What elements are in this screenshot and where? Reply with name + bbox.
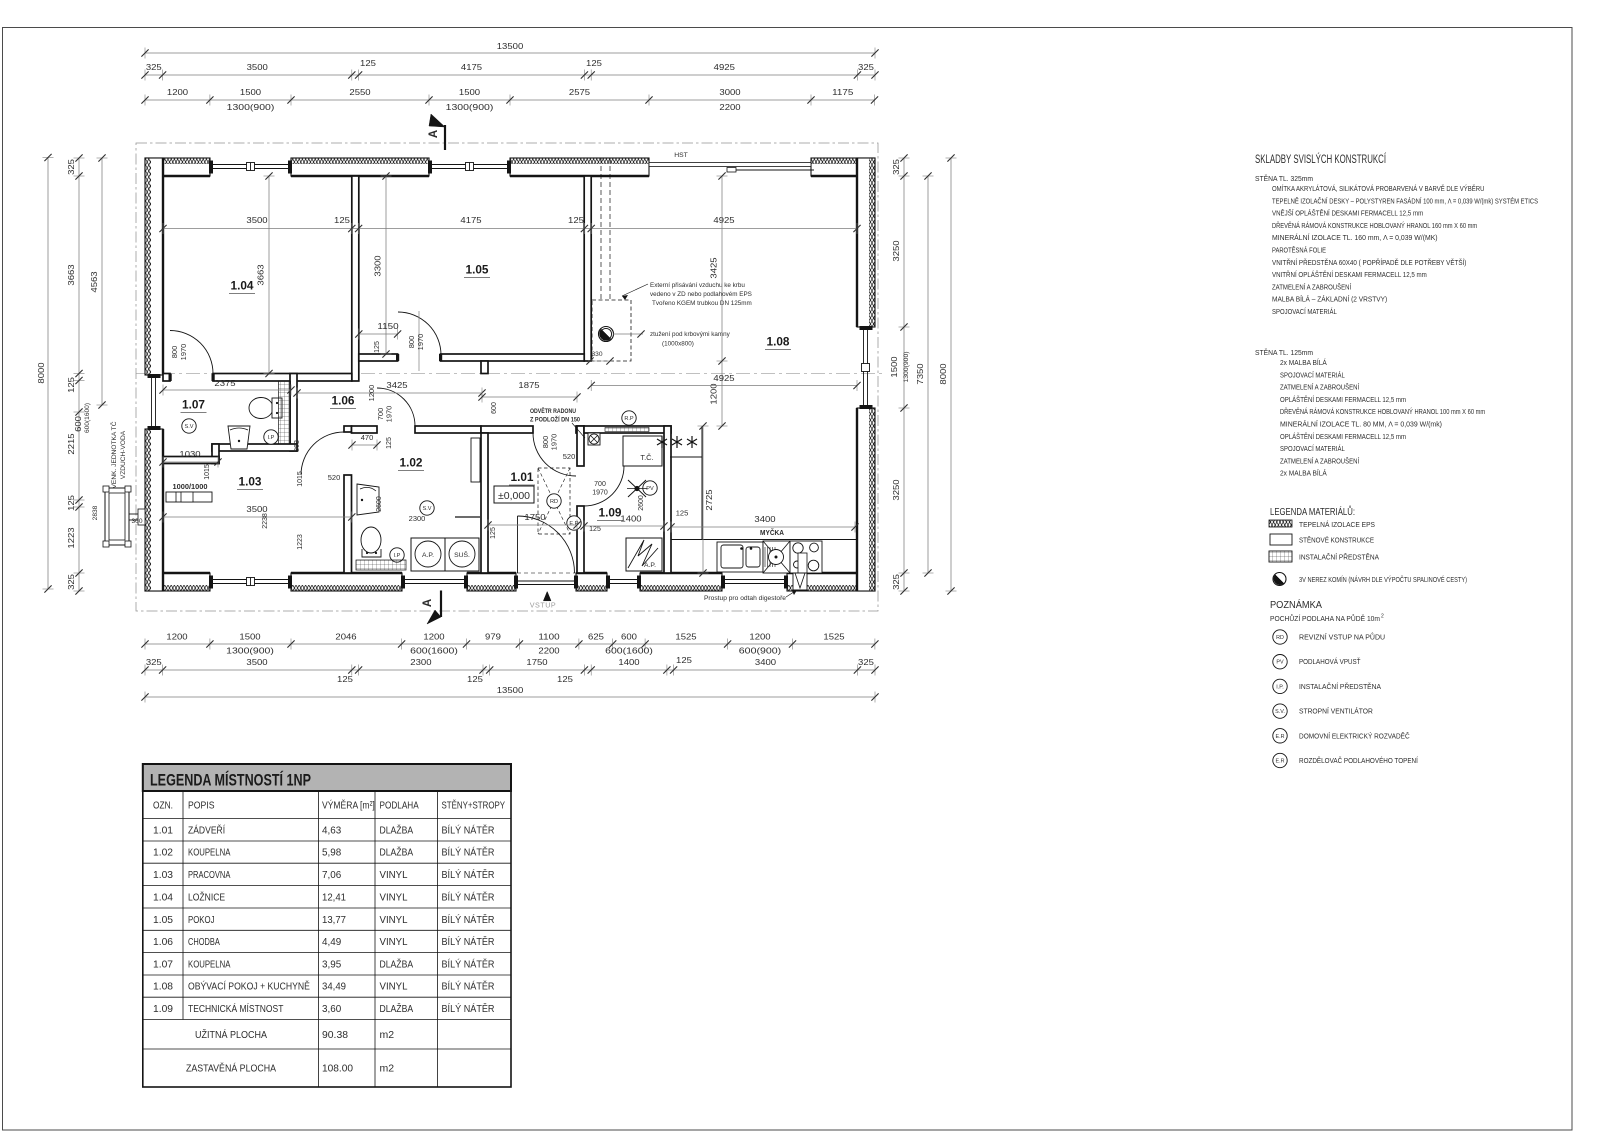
- svg-text:125: 125: [374, 341, 381, 353]
- svg-text:E.R: E.R: [1276, 734, 1285, 740]
- svg-text:1.01: 1.01: [153, 824, 173, 836]
- svg-text:A.P.: A.P.: [422, 552, 434, 559]
- svg-text:2600: 2600: [376, 496, 383, 512]
- svg-text:3,60: 3,60: [322, 1003, 341, 1015]
- svg-text:520: 520: [563, 452, 576, 461]
- svg-text:1400: 1400: [618, 658, 640, 667]
- svg-text:325: 325: [892, 573, 901, 590]
- svg-text:1.08: 1.08: [767, 337, 791, 349]
- svg-text:VENK. JEDNOTKA TČ: VENK. JEDNOTKA TČ: [109, 421, 118, 488]
- svg-text:TECHNICKÁ MÍSTNOST: TECHNICKÁ MÍSTNOST: [188, 1002, 284, 1015]
- svg-text:1200: 1200: [167, 88, 189, 97]
- svg-text:4563: 4563: [90, 271, 99, 293]
- svg-text:1400: 1400: [620, 515, 642, 524]
- svg-text:125: 125: [589, 526, 601, 533]
- svg-text:1200: 1200: [710, 383, 719, 405]
- svg-text:PRACOVNA: PRACOVNA: [188, 869, 230, 881]
- svg-text:1.05: 1.05: [466, 265, 490, 277]
- svg-text:I.P: I.P: [268, 435, 275, 441]
- svg-text:UŽITNÁ PLOCHA: UŽITNÁ PLOCHA: [195, 1028, 267, 1041]
- svg-text:2600: 2600: [638, 495, 645, 511]
- svg-text:VSTUP: VSTUP: [530, 601, 556, 610]
- svg-text:1970: 1970: [416, 334, 425, 351]
- svg-text:2238: 2238: [262, 513, 269, 529]
- svg-text:3250: 3250: [892, 240, 901, 262]
- svg-text:INSTALAČNÍ PŘEDSTĚNA: INSTALAČNÍ PŘEDSTĚNA: [1299, 682, 1381, 691]
- svg-text:125: 125: [337, 675, 354, 684]
- svg-text:4175: 4175: [461, 63, 483, 72]
- svg-text:2575: 2575: [569, 88, 591, 97]
- svg-text:13,77: 13,77: [322, 914, 346, 926]
- svg-text:STĚNA TL. 125mm: STĚNA TL. 125mm: [1255, 348, 1313, 357]
- svg-text:VINYL: VINYL: [380, 936, 408, 948]
- svg-text:SUŠ.: SUŠ.: [454, 550, 470, 559]
- svg-text:S.V: S.V: [422, 506, 431, 512]
- svg-text:520: 520: [328, 473, 341, 482]
- svg-text:325: 325: [67, 158, 76, 175]
- svg-text:34,49: 34,49: [322, 981, 346, 993]
- svg-text:1.06: 1.06: [153, 936, 173, 948]
- svg-text:2838: 2838: [92, 505, 99, 520]
- svg-text:8000: 8000: [37, 362, 46, 384]
- svg-text:1.02: 1.02: [153, 847, 173, 859]
- svg-text:1.06: 1.06: [332, 396, 355, 408]
- svg-text:ZATMELENÍ A ZABROUŠENÍ: ZATMELENÍ A ZABROUŠENÍ: [1272, 282, 1352, 291]
- svg-text:2046: 2046: [335, 633, 357, 642]
- svg-text:OMÍTKA AKRYLÁTOVÁ, SILIKÁTOVÁ: OMÍTKA AKRYLÁTOVÁ, SILIKÁTOVÁ PROBARVENÁ…: [1272, 184, 1484, 193]
- svg-text:13500: 13500: [497, 686, 524, 695]
- svg-text:4925: 4925: [713, 216, 735, 225]
- svg-text:2x MALBA BÍLÁ: 2x MALBA BÍLÁ: [1280, 469, 1327, 478]
- svg-text:1875: 1875: [518, 381, 540, 390]
- svg-text:VNITŘNÍ PŘEDSTĚNA 60X40 ( POPŘ: VNITŘNÍ PŘEDSTĚNA 60X40 ( POPŘÍPADĚ DLE …: [1272, 258, 1466, 267]
- svg-text:2375: 2375: [214, 379, 236, 388]
- svg-text:REVIZNÍ VSTUP NA PŮDU: REVIZNÍ VSTUP NA PŮDU: [1299, 633, 1385, 642]
- svg-text:VÝMĚRA [m²]: VÝMĚRA [m²]: [322, 798, 375, 811]
- svg-text:1175: 1175: [832, 88, 854, 97]
- svg-text:DOMOVNÍ ELEKTRICKÝ ROZVADĚČ: DOMOVNÍ ELEKTRICKÝ ROZVADĚČ: [1299, 731, 1410, 740]
- svg-text:4175: 4175: [460, 216, 482, 225]
- svg-text:2215: 2215: [67, 433, 76, 455]
- svg-text:OZN.: OZN.: [153, 799, 173, 811]
- svg-text:m2: m2: [380, 1029, 395, 1041]
- svg-text:DLAŽBA: DLAŽBA: [380, 957, 414, 970]
- svg-text:1970: 1970: [385, 406, 394, 423]
- svg-text:4,63: 4,63: [322, 824, 341, 836]
- svg-text:A: A: [422, 599, 434, 607]
- svg-text:330: 330: [591, 351, 602, 358]
- svg-text:1300(900): 1300(900): [226, 647, 274, 656]
- svg-text:PV: PV: [646, 486, 654, 492]
- svg-text:4,49: 4,49: [322, 936, 341, 948]
- svg-text:SPOJOVACÍ MATERIÁL: SPOJOVACÍ MATERIÁL: [1280, 444, 1345, 453]
- svg-text:2300: 2300: [410, 658, 432, 667]
- svg-text:PODLAHA: PODLAHA: [380, 799, 419, 811]
- svg-text:E.R: E.R: [1276, 759, 1285, 765]
- svg-text:1000/1000: 1000/1000: [173, 482, 208, 491]
- svg-text:ODVĚTR RADONU: ODVĚTR RADONU: [530, 406, 576, 415]
- svg-text:VINYL: VINYL: [380, 869, 408, 881]
- svg-text:LEGENDA MATERIÁLŮ:: LEGENDA MATERIÁLŮ:: [1270, 505, 1355, 518]
- svg-text:STĚNA TL. 325mm: STĚNA TL. 325mm: [1255, 174, 1313, 183]
- svg-text:SPOJOVACÍ MATERIÁL: SPOJOVACÍ MATERIÁL: [1280, 370, 1345, 379]
- svg-text:125: 125: [676, 509, 689, 518]
- svg-text:I.P.: I.P.: [1276, 684, 1283, 690]
- svg-text:BÍLÝ NÁTĚR: BÍLÝ NÁTĚR: [442, 980, 495, 993]
- svg-text:VNĚJŠÍ OPLÁŠTĚNÍ DESKAMI FERMA: VNĚJŠÍ OPLÁŠTĚNÍ DESKAMI FERMACELL 12,5 …: [1272, 209, 1423, 218]
- svg-text:1100: 1100: [538, 633, 560, 642]
- svg-text:DLAŽBA: DLAŽBA: [380, 846, 414, 859]
- svg-text:1.02: 1.02: [400, 458, 423, 470]
- svg-text:3425: 3425: [386, 381, 408, 390]
- svg-text:SKLADBY SVISLÝCH KONSTRUKCÍ: SKLADBY SVISLÝCH KONSTRUKCÍ: [1255, 153, 1387, 166]
- svg-text:HST: HST: [674, 152, 688, 159]
- svg-text:800: 800: [407, 336, 416, 349]
- svg-text:125: 125: [557, 675, 574, 684]
- svg-text:MALBA BÍLÁ – ZÁKLADNÍ (2 VRSTV: MALBA BÍLÁ – ZÁKLADNÍ (2 VRSTVY): [1272, 295, 1387, 304]
- svg-text:1970: 1970: [179, 344, 188, 361]
- svg-text:INSTALAČNÍ PŘEDSTĚNA: INSTALAČNÍ PŘEDSTĚNA: [1299, 553, 1379, 562]
- svg-text:ROZDĚLOVAČ PODLAHOVÉHO TOPENÍ: ROZDĚLOVAČ PODLAHOVÉHO TOPENÍ: [1299, 756, 1419, 765]
- svg-text:VINYL: VINYL: [380, 914, 408, 926]
- svg-text:3V NEREZ KOMÍN (NÁVRH DLE VÝPO: 3V NEREZ KOMÍN (NÁVRH DLE VÝPOČTU SPALIN…: [1299, 575, 1467, 584]
- svg-text:S.V.: S.V.: [1275, 709, 1285, 715]
- svg-text:1500: 1500: [890, 356, 899, 378]
- svg-text:700: 700: [594, 481, 606, 488]
- svg-text:DŘEVĚNÁ RÁMOVÁ KONSTRUKCE HOBL: DŘEVĚNÁ RÁMOVÁ KONSTRUKCE HOBLOVANÝ HRAN…: [1280, 407, 1485, 416]
- svg-text:BÍLÝ NÁTĚR: BÍLÝ NÁTĚR: [442, 846, 495, 859]
- svg-text:3425: 3425: [710, 257, 719, 279]
- svg-text:125: 125: [67, 494, 76, 511]
- svg-text:3500: 3500: [247, 63, 269, 72]
- svg-text:1.07: 1.07: [153, 958, 173, 970]
- svg-text:125: 125: [586, 59, 603, 68]
- svg-text:POCHŮZÍ PODLAHA NA PŮDĚ 10m: POCHŮZÍ PODLAHA NA PŮDĚ 10m: [1270, 614, 1380, 623]
- svg-text:8000: 8000: [939, 363, 948, 385]
- svg-text:1750: 1750: [526, 658, 548, 667]
- svg-text:Prostup pro odtah digestoře: Prostup pro odtah digestoře: [704, 595, 787, 602]
- svg-text:KOUPELNA: KOUPELNA: [188, 847, 230, 859]
- svg-text:BÍLÝ NÁTĚR: BÍLÝ NÁTĚR: [442, 935, 495, 948]
- svg-text:POKOJ: POKOJ: [188, 914, 215, 926]
- svg-text:3500: 3500: [246, 658, 268, 667]
- svg-text:A.P.: A.P.: [644, 562, 656, 569]
- svg-text:325: 325: [858, 658, 875, 667]
- svg-text:PAROTĚSNÁ FOLIE: PAROTĚSNÁ FOLIE: [1272, 246, 1326, 255]
- svg-text:3,95: 3,95: [322, 958, 341, 970]
- svg-text:325: 325: [892, 158, 901, 175]
- svg-text:125: 125: [568, 216, 585, 225]
- svg-text:TEPELNĚ IZOLAČNÍ DESKY – POLYS: TEPELNĚ IZOLAČNÍ DESKY – POLYSTYREN FASÁ…: [1272, 196, 1538, 205]
- svg-text:13500: 13500: [497, 42, 524, 51]
- svg-text:363: 363: [294, 440, 301, 452]
- svg-text:800: 800: [170, 346, 179, 359]
- svg-text:2550: 2550: [349, 88, 371, 97]
- svg-text:1030: 1030: [179, 450, 201, 459]
- svg-text:1015: 1015: [204, 464, 211, 480]
- svg-text:2200: 2200: [538, 647, 560, 656]
- svg-text:BÍLÝ NÁTĚR: BÍLÝ NÁTĚR: [442, 957, 495, 970]
- svg-text:Externí přisávání vzduchu ke k: Externí přisávání vzduchu ke krbu: [650, 282, 745, 289]
- svg-text:1200: 1200: [749, 633, 771, 642]
- svg-text:STĚNOVÉ KONSTRUKCE: STĚNOVÉ KONSTRUKCE: [1299, 536, 1374, 545]
- svg-text:1500: 1500: [239, 633, 261, 642]
- svg-text:OBÝVACÍ POKOJ + KUCHYNĚ: OBÝVACÍ POKOJ + KUCHYNĚ: [188, 980, 310, 993]
- svg-text:VINYL: VINYL: [380, 981, 408, 993]
- svg-text:12,41: 12,41: [322, 891, 346, 903]
- svg-text:A: A: [428, 130, 440, 138]
- svg-text:ZASTAVĚNÁ PLOCHA: ZASTAVĚNÁ PLOCHA: [186, 1062, 276, 1075]
- svg-text:2: 2: [1381, 614, 1384, 620]
- svg-text:1.03: 1.03: [239, 477, 262, 489]
- svg-text:1970: 1970: [550, 434, 559, 451]
- svg-text:1.07: 1.07: [182, 400, 205, 412]
- svg-text:STĚNY+STROPY: STĚNY+STROPY: [442, 798, 506, 811]
- svg-text:KOUPELNA: KOUPELNA: [188, 958, 230, 970]
- svg-text:RD: RD: [550, 499, 558, 505]
- svg-text:I.P: I.P: [394, 553, 401, 559]
- svg-text:470: 470: [361, 433, 374, 442]
- svg-text:7,06: 7,06: [322, 869, 341, 881]
- svg-text:BÍLÝ NÁTĚR: BÍLÝ NÁTĚR: [442, 868, 495, 881]
- svg-text:1525: 1525: [823, 633, 845, 642]
- svg-text:600(1600): 600(1600): [605, 647, 653, 656]
- svg-text:600: 600: [491, 402, 498, 414]
- svg-text:TEPELNÁ IZOLACE EPS: TEPELNÁ IZOLACE EPS: [1299, 520, 1375, 529]
- svg-text:1.08: 1.08: [153, 981, 173, 993]
- svg-text:1525: 1525: [675, 633, 697, 642]
- svg-text:2725: 2725: [705, 489, 714, 511]
- svg-text:Tvořeno KGEM trubkou DN 125mm: Tvořeno KGEM trubkou DN 125mm: [652, 300, 752, 307]
- svg-text:S.V: S.V: [184, 424, 193, 430]
- svg-text:325: 325: [67, 573, 76, 590]
- svg-text:325: 325: [858, 63, 875, 72]
- svg-text:1200: 1200: [423, 633, 445, 642]
- svg-text:5,98: 5,98: [322, 847, 341, 859]
- svg-text:ZATMELENÍ A ZABROUŠENÍ: ZATMELENÍ A ZABROUŠENÍ: [1280, 383, 1360, 392]
- svg-text:m2: m2: [380, 1063, 395, 1075]
- svg-text:1.09: 1.09: [153, 1003, 173, 1015]
- svg-text:4925: 4925: [713, 374, 735, 383]
- svg-text:1.04: 1.04: [153, 891, 173, 903]
- svg-text:600(900): 600(900): [739, 647, 782, 656]
- svg-text:600(1600): 600(1600): [84, 403, 91, 433]
- svg-text:BÍLÝ NÁTĚR: BÍLÝ NÁTĚR: [442, 913, 495, 926]
- svg-text:625: 625: [588, 633, 605, 642]
- svg-text:125: 125: [676, 656, 693, 665]
- svg-text:125: 125: [467, 675, 484, 684]
- svg-text:4925: 4925: [714, 63, 736, 72]
- svg-text:1.05: 1.05: [153, 914, 173, 926]
- svg-text:BÍLÝ NÁTĚR: BÍLÝ NÁTĚR: [442, 823, 495, 836]
- svg-text:125: 125: [490, 527, 497, 539]
- svg-text:125: 125: [360, 59, 377, 68]
- svg-text:Z PODLOŽÍ DN 150: Z PODLOŽÍ DN 150: [530, 415, 580, 424]
- svg-text:3663: 3663: [257, 264, 266, 286]
- svg-text:STROPNÍ VENTILÁTOR: STROPNÍ VENTILÁTOR: [1299, 707, 1373, 716]
- svg-text:PODLAHOVÁ VPUSŤ: PODLAHOVÁ VPUSŤ: [1299, 657, 1361, 666]
- svg-text:VINYL: VINYL: [380, 891, 408, 903]
- svg-text:1300(900): 1300(900): [903, 352, 910, 383]
- svg-text:RD: RD: [1276, 635, 1284, 641]
- svg-text:1223: 1223: [297, 534, 304, 550]
- svg-text:CHODBA: CHODBA: [188, 936, 220, 948]
- svg-text:MINERÁLNÍ IZOLACE TL. 80 MM, Λ: MINERÁLNÍ IZOLACE TL. 80 MM, Λ = 0,039 W…: [1280, 420, 1442, 429]
- svg-text:1150: 1150: [377, 322, 399, 331]
- svg-text:LOŽNICE: LOŽNICE: [188, 890, 225, 903]
- svg-text:2200: 2200: [719, 103, 741, 112]
- svg-text:ztužení pod krbovými kamny: ztužení pod krbovými kamny: [650, 331, 731, 338]
- svg-text:125: 125: [334, 216, 351, 225]
- svg-text:1015: 1015: [297, 471, 304, 487]
- svg-text:VNITŘNÍ OPLÁŠTĚNÍ DESKAMI FERM: VNITŘNÍ OPLÁŠTĚNÍ DESKAMI FERMACELL 12,5…: [1272, 270, 1427, 279]
- svg-text:1.03: 1.03: [153, 869, 173, 881]
- svg-text:T.Č.: T.Č.: [640, 453, 653, 462]
- svg-text:90.38: 90.38: [322, 1029, 348, 1041]
- svg-text:BÍLÝ NÁTĚR: BÍLÝ NÁTĚR: [442, 890, 495, 903]
- svg-text:600(1600): 600(1600): [410, 647, 458, 656]
- svg-text:DŘEVĚNÁ RÁMOVÁ KONSTRUKCE HOBL: DŘEVĚNÁ RÁMOVÁ KONSTRUKCE HOBLOVANÝ HRAN…: [1272, 221, 1477, 230]
- svg-text:2x MALBA BÍLÁ: 2x MALBA BÍLÁ: [1280, 358, 1327, 367]
- svg-text:600: 600: [621, 633, 638, 642]
- svg-text:MYČKA: MYČKA: [760, 528, 784, 537]
- svg-text:OPLÁŠTĚNÍ DESKAMI FERMACELL 12: OPLÁŠTĚNÍ DESKAMI FERMACELL 12,5 mm: [1280, 395, 1406, 404]
- svg-text:300: 300: [131, 518, 142, 525]
- svg-text:1750: 1750: [524, 513, 546, 522]
- svg-text:POPIS: POPIS: [188, 799, 215, 811]
- svg-text:3500: 3500: [246, 216, 268, 225]
- svg-text:DLAŽBA: DLAŽBA: [380, 823, 414, 836]
- svg-text:1500: 1500: [240, 88, 262, 97]
- svg-text:1200: 1200: [166, 633, 188, 642]
- svg-text:vedeno v ZD nebo podlahovém EP: vedeno v ZD nebo podlahovém EPS: [650, 291, 752, 298]
- svg-text:BÍLÝ NÁTĚR: BÍLÝ NÁTĚR: [442, 1002, 495, 1015]
- svg-text:125: 125: [386, 437, 393, 449]
- svg-text:VZDUCH-VODA: VZDUCH-VODA: [120, 430, 127, 479]
- svg-text:MINERÁLNÍ IZOLACE TL. 160 mm,: MINERÁLNÍ IZOLACE TL. 160 mm, Λ = 0,039 …: [1272, 233, 1438, 242]
- svg-text:R.P: R.P: [624, 416, 634, 422]
- svg-text:1970: 1970: [592, 490, 608, 497]
- svg-text:POZNÁMKA: POZNÁMKA: [1270, 598, 1322, 611]
- svg-text:±0,000: ±0,000: [498, 490, 530, 502]
- svg-text:3250: 3250: [892, 479, 901, 501]
- svg-text:125: 125: [67, 376, 76, 393]
- svg-text:ZATMELENÍ A ZABROUŠENÍ: ZATMELENÍ A ZABROUŠENÍ: [1280, 456, 1360, 465]
- svg-text:3663: 3663: [67, 264, 76, 286]
- svg-text:2300: 2300: [409, 514, 426, 523]
- svg-text:979: 979: [485, 633, 502, 642]
- svg-text:108.00: 108.00: [322, 1063, 353, 1075]
- svg-text:3000: 3000: [719, 88, 741, 97]
- svg-text:1200: 1200: [367, 385, 376, 402]
- svg-text:3300: 3300: [374, 255, 383, 277]
- svg-text:325: 325: [146, 63, 163, 72]
- svg-text:1500: 1500: [459, 88, 481, 97]
- svg-text:3400: 3400: [755, 658, 777, 667]
- svg-text:325: 325: [146, 658, 163, 667]
- svg-text:1223: 1223: [67, 527, 76, 549]
- svg-text:ZÁDVEŘÍ: ZÁDVEŘÍ: [188, 823, 225, 836]
- svg-text:3400: 3400: [754, 515, 776, 524]
- svg-text:SPOJOVACÍ MATERIÁL: SPOJOVACÍ MATERIÁL: [1272, 307, 1337, 316]
- svg-text:1300(900): 1300(900): [227, 103, 275, 112]
- svg-text:3500: 3500: [246, 505, 268, 514]
- svg-text:600: 600: [74, 415, 83, 432]
- svg-text:PV: PV: [1276, 660, 1284, 666]
- svg-text:1.04: 1.04: [231, 281, 255, 293]
- svg-text:1300(900): 1300(900): [446, 103, 494, 112]
- svg-text:1.09: 1.09: [599, 508, 622, 520]
- svg-text:OPLÁŠTĚNÍ DESKAMI FERMACELL 12: OPLÁŠTĚNÍ DESKAMI FERMACELL 12,5 mm: [1280, 432, 1406, 441]
- svg-text:1.01: 1.01: [511, 472, 535, 484]
- svg-text:7350: 7350: [916, 363, 925, 385]
- svg-text:DLAŽBA: DLAŽBA: [380, 1002, 414, 1015]
- svg-text:(1000x800): (1000x800): [662, 341, 694, 348]
- svg-text:LEGENDA MÍSTNOSTÍ 1NP: LEGENDA MÍSTNOSTÍ 1NP: [150, 771, 311, 790]
